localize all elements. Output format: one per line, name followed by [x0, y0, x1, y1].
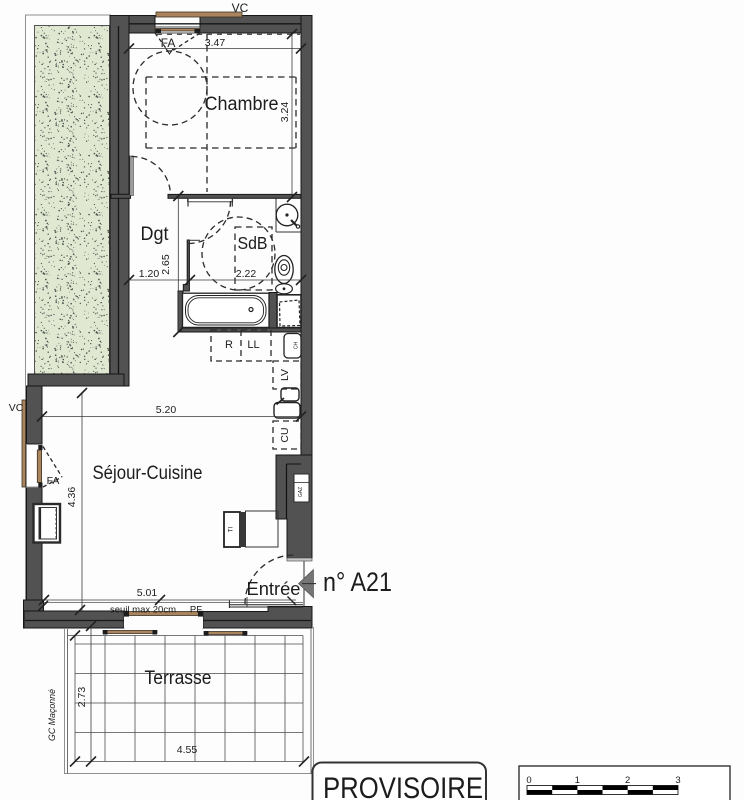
svg-text:2.65: 2.65	[160, 254, 172, 275]
svg-text:PF: PF	[190, 605, 202, 616]
svg-text:1.20: 1.20	[139, 268, 160, 280]
svg-text:GAZ: GAZ	[298, 487, 304, 497]
svg-text:n° A21: n° A21	[323, 567, 392, 597]
svg-text:3: 3	[675, 775, 680, 786]
svg-text:R: R	[225, 339, 233, 351]
svg-text:1: 1	[575, 775, 580, 786]
svg-text:Chambre: Chambre	[205, 94, 279, 115]
svg-text:LL: LL	[247, 339, 259, 351]
svg-text:5.01: 5.01	[137, 587, 158, 599]
svg-text:LV: LV	[279, 369, 291, 381]
svg-text:2.73: 2.73	[76, 687, 88, 708]
svg-text:4.55: 4.55	[177, 744, 198, 756]
svg-text:CU: CU	[279, 427, 291, 442]
svg-text:3.47: 3.47	[205, 37, 226, 49]
svg-text:Entrée: Entrée	[247, 579, 301, 599]
svg-text:2.22: 2.22	[236, 268, 257, 280]
svg-text:CH: CH	[294, 342, 300, 350]
svg-text:4.36: 4.36	[66, 487, 78, 508]
svg-text:0: 0	[526, 775, 531, 786]
svg-text:3.24: 3.24	[279, 102, 291, 123]
svg-text:FA: FA	[161, 36, 176, 50]
svg-text:Terrasse: Terrasse	[145, 668, 212, 689]
svg-text:FA: FA	[47, 475, 60, 487]
svg-text:PROVISOIRE: PROVISOIRE	[323, 772, 483, 800]
svg-text:TI: TI	[229, 527, 235, 533]
svg-text:VC: VC	[232, 1, 249, 15]
svg-text:VC: VC	[9, 402, 24, 414]
svg-text:2: 2	[625, 775, 630, 786]
svg-text:Séjour-Cuisine: Séjour-Cuisine	[93, 463, 203, 484]
svg-text:GC Maçonné: GC Maçonné	[47, 689, 58, 741]
svg-text:5.20: 5.20	[156, 404, 177, 416]
svg-text:Dgt: Dgt	[141, 224, 170, 245]
svg-text:SdB: SdB	[238, 233, 268, 253]
svg-text:seuil max 20cm: seuil max 20cm	[110, 605, 176, 616]
